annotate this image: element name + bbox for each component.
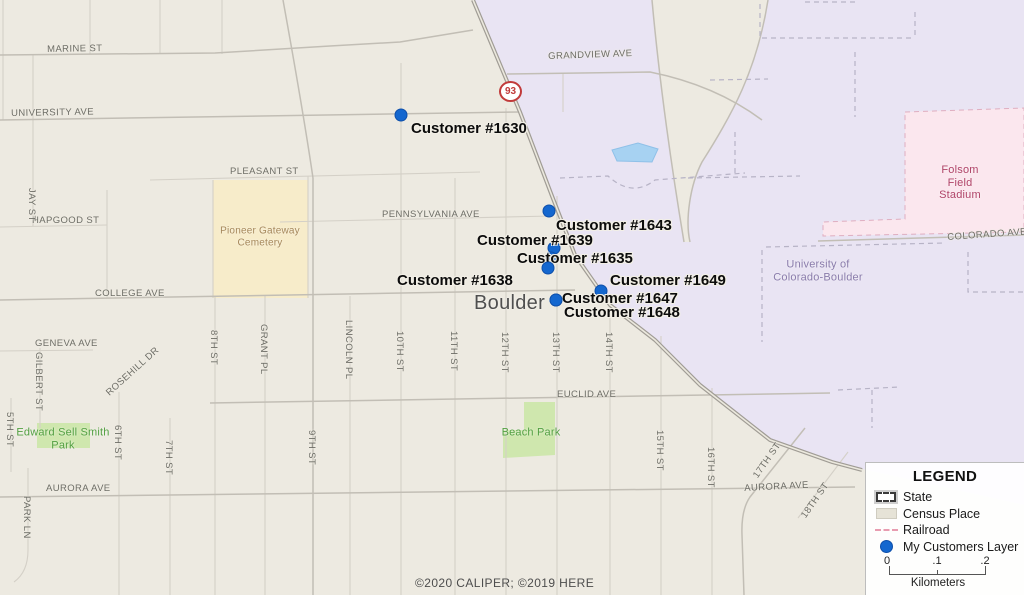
pioneer-gateway-cemetery-label: Pioneer GatewayCemetery [220, 226, 300, 249]
street-label-15th-st: 15TH ST [654, 430, 665, 471]
customer-dot-1638[interactable] [542, 262, 555, 275]
railroad-swatch [875, 529, 898, 531]
street-label-6th-st: 6TH ST [112, 425, 123, 460]
street-label-14th-st: 14TH ST [603, 332, 614, 373]
legend-items: StateCensus PlaceRailroadMy Customers La… [866, 489, 1024, 555]
edward-sell-smith-park-label-line: Park [16, 439, 109, 452]
street-label-16th-st: 16TH ST [705, 447, 716, 488]
street-label-8th-st: 8TH ST [208, 330, 219, 365]
legend-row-railroad: Railroad [866, 522, 1024, 539]
legend-row-customers: My Customers Layer [866, 539, 1024, 556]
beach-park-label: Beach Park [502, 427, 561, 440]
beach-park-label-line: Beach Park [502, 427, 561, 440]
street-label-gilbert-st: GILBERT ST [33, 352, 44, 411]
legend-title: LEGEND [866, 468, 1024, 485]
legend-row-census: Census Place [866, 506, 1024, 523]
scale-bar-midtick [937, 570, 938, 575]
legend-symbol-railroad-icon [873, 529, 899, 531]
street-label-park-ln: PARK LN [21, 496, 32, 539]
legend-label: Census Place [903, 507, 980, 521]
street-label-marine-st: MARINE ST [47, 43, 103, 55]
legend-label: My Customers Layer [903, 540, 1018, 554]
highway-93-shield: 93 [499, 81, 522, 102]
legend-panel: LEGEND StateCensus PlaceRailroadMy Custo… [865, 462, 1024, 595]
legend-symbol-census-icon [873, 508, 899, 519]
street-label-geneva-ave: GENEVA AVE [35, 338, 98, 349]
customer-dot-1630[interactable] [395, 109, 408, 122]
street-label-9th-st: 9TH ST [306, 430, 317, 465]
street-label-hapgood-st: HAPGOOD ST [32, 215, 99, 226]
edward-sell-smith-park-label: Edward Sell SmithPark [16, 426, 109, 451]
scale-unit-label: Kilometers [911, 577, 965, 589]
street-label-university-ave: UNIVERSITY AVE [11, 107, 94, 119]
customer-label-1630: Customer #1630 [411, 121, 527, 137]
customer-label-1648: Customer #1648 [564, 305, 680, 321]
state-swatch [876, 492, 896, 502]
street-label-jay-st: JAY ST [26, 188, 37, 222]
street-label-5th-st: 5TH ST [4, 412, 15, 447]
map-copyright: ©2020 CALIPER; ©2019 HERE [415, 576, 594, 590]
legend-label: State [903, 490, 932, 504]
pioneer-gateway-cemetery-label-line: Pioneer Gateway [220, 226, 300, 238]
street-label-pleasant-st: PLEASANT ST [230, 166, 299, 177]
legend-symbol-customers-icon [873, 540, 899, 553]
city-label-boulder: Boulder [474, 292, 545, 315]
legend-label: Railroad [903, 523, 950, 537]
university-label-line: Colorado-Boulder [773, 271, 862, 284]
edward-sell-smith-park-label-line: Edward Sell Smith [16, 426, 109, 439]
legend-row-state: State [866, 489, 1024, 506]
customers-swatch [880, 540, 893, 553]
university-label: University ofColorado-Boulder [773, 258, 862, 283]
customer-label-1635: Customer #1635 [517, 251, 633, 267]
legend-symbol-state-icon [873, 492, 899, 502]
street-label-7th-st: 7TH ST [163, 440, 174, 475]
customer-label-1639: Customer #1639 [477, 233, 593, 249]
highway-93-shield-number: 93 [505, 86, 516, 97]
street-label-11th-st: 11TH ST [448, 331, 459, 371]
customer-dot-1648[interactable] [550, 294, 563, 307]
pioneer-gateway-cemetery-label-line: Cemetery [220, 237, 300, 249]
folsom-field-stadium-label-line: Folsom Field [928, 164, 992, 189]
street-label-13th-st: 13TH ST [550, 332, 561, 373]
customer-label-1638: Customer #1638 [397, 273, 513, 289]
folsom-field-stadium-label-line: Stadium [928, 189, 992, 202]
street-label-grant-pl: GRANT PL [258, 324, 269, 375]
street-label-pennsylvania-ave: PENNSYLVANIA AVE [382, 209, 480, 220]
customer-label-1649: Customer #1649 [610, 273, 726, 289]
map-canvas[interactable]: 93 MARINE STUNIVERSITY AVEGRANDVIEW AVEP… [0, 0, 1024, 595]
street-label-euclid-ave: EUCLID AVE [557, 389, 616, 400]
street-label-aurora-ave: AURORA AVE [46, 483, 111, 494]
street-label-10th-st: 10TH ST [394, 331, 405, 372]
street-label-12th-st: 12TH ST [499, 332, 510, 373]
street-label-college-ave: COLLEGE AVE [95, 288, 165, 299]
customer-dot-1643[interactable] [543, 205, 556, 218]
folsom-field-stadium-label: Folsom FieldStadium [928, 164, 992, 202]
university-label-line: University of [773, 258, 862, 271]
census-swatch [876, 508, 897, 519]
street-label-lincoln-pl: LINCOLN PL [343, 320, 354, 379]
